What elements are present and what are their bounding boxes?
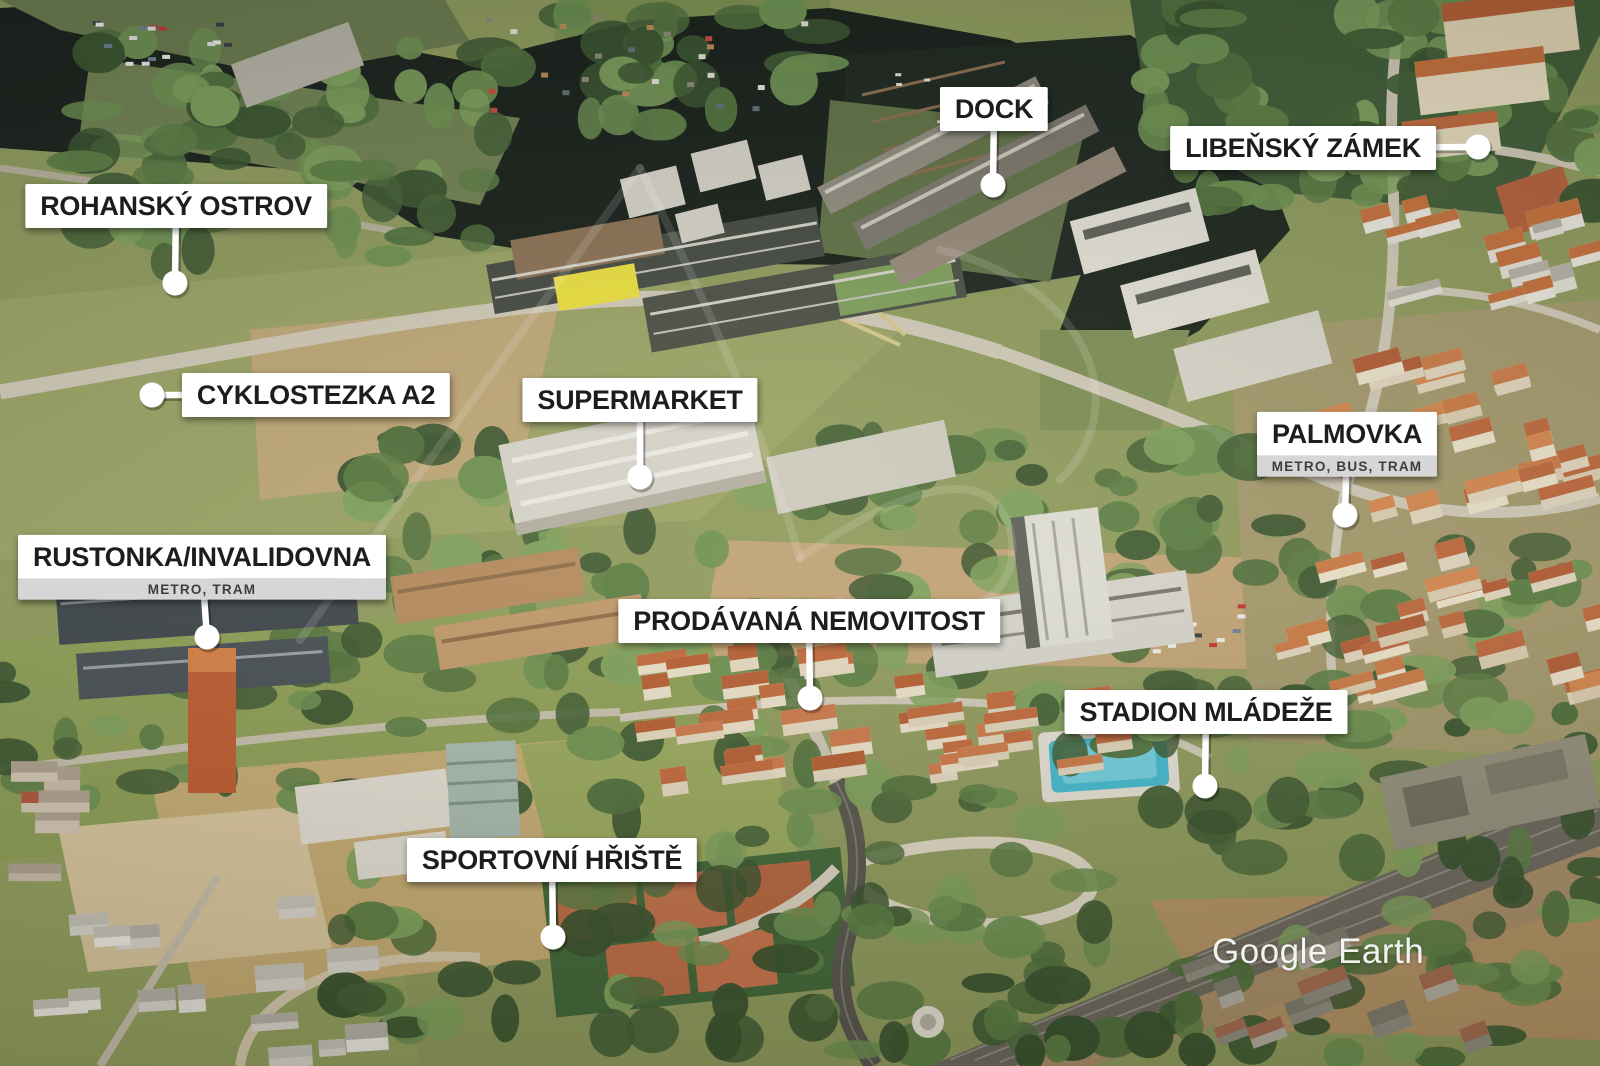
- map-label-cyklostezka-a2: CYKLOSTEZKA A2: [182, 373, 450, 417]
- map-label-supermarket: SUPERMARKET: [522, 378, 757, 422]
- google-earth-watermark: Google Earth: [1212, 932, 1424, 972]
- map-label-text: RUSTONKA/INVALIDOVNA: [18, 535, 386, 579]
- map-label-dock: DOCK: [940, 87, 1048, 131]
- map-label-palmovka: PALMOVKAMETRO, BUS, TRAM: [1257, 412, 1437, 477]
- marker-dot-palmovka: [1333, 503, 1358, 528]
- marker-dot-libensky-zamek: [1466, 135, 1491, 160]
- map-label-text: STADION MLÁDEŽE: [1065, 690, 1348, 734]
- map-label-text: ROHANSKÝ OSTROV: [25, 184, 327, 228]
- map-label-text: PALMOVKA: [1257, 412, 1437, 456]
- marker-dot-rohansky-ostrov: [163, 271, 188, 296]
- map-label-rustonka-invalidovna: RUSTONKA/INVALIDOVNAMETRO, TRAM: [18, 535, 386, 600]
- map-sublabel-text: METRO, TRAM: [18, 579, 386, 600]
- map-label-text: SPORTOVNÍ HŘIŠTĚ: [407, 838, 697, 882]
- marker-dot-dock: [981, 173, 1006, 198]
- map-label-text: DOCK: [940, 87, 1048, 131]
- map-label-text: LIBEŇSKÝ ZÁMEK: [1170, 126, 1436, 170]
- map-label-libensky-zamek: LIBEŇSKÝ ZÁMEK: [1170, 126, 1436, 170]
- map-label-text: SUPERMARKET: [522, 378, 757, 422]
- aerial-map: ROHANSKÝ OSTROVDOCKLIBEŇSKÝ ZÁMEKCYKLOST…: [0, 0, 1600, 1066]
- map-sublabel-text: METRO, BUS, TRAM: [1257, 456, 1437, 477]
- map-label-text: CYKLOSTEZKA A2: [182, 373, 450, 417]
- marker-dot-prodavana-nemovitost: [798, 686, 823, 711]
- map-label-prodavana-nemovitost: PRODÁVANÁ NEMOVITOST: [618, 599, 1000, 643]
- marker-dot-sportovni-hriste: [541, 925, 566, 950]
- marker-dot-cyklostezka-a2: [140, 383, 165, 408]
- marker-dot-stadion-mladeze: [1193, 774, 1218, 799]
- map-label-sportovni-hriste: SPORTOVNÍ HŘIŠTĚ: [407, 838, 697, 882]
- map-label-text: PRODÁVANÁ NEMOVITOST: [618, 599, 1000, 643]
- map-label-stadion-mladeze: STADION MLÁDEŽE: [1065, 690, 1348, 734]
- marker-dot-supermarket: [628, 465, 653, 490]
- marker-dot-rustonka-invalidovna: [195, 625, 220, 650]
- map-label-rohansky-ostrov: ROHANSKÝ OSTROV: [25, 184, 327, 228]
